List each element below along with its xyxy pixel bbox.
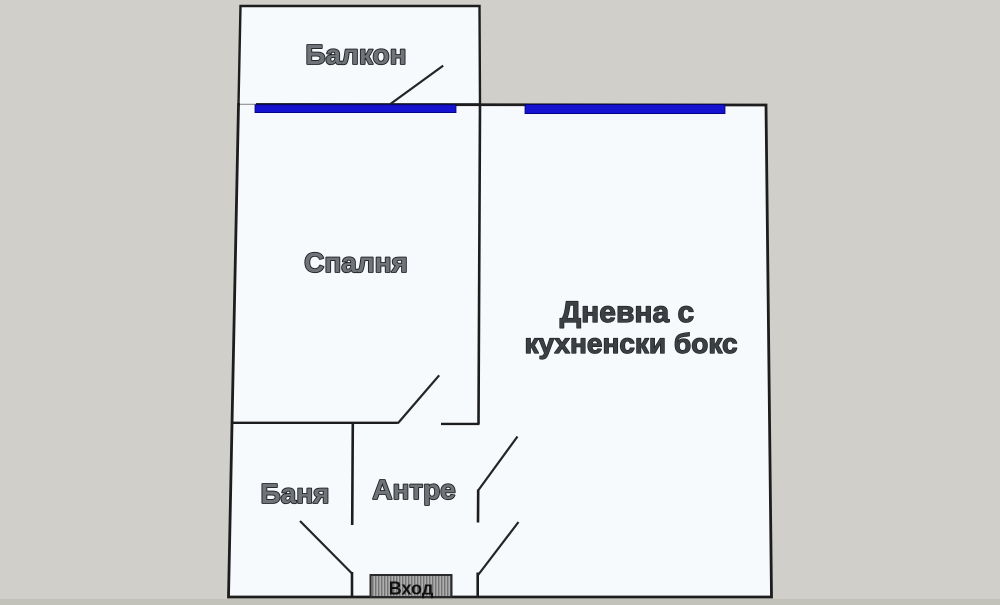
- svg-text:кухненски бокс: кухненски бокс: [524, 328, 737, 359]
- svg-text:Спалня: Спалня: [304, 247, 408, 278]
- svg-text:Вход: Вход: [389, 579, 434, 599]
- svg-text:Антре: Антре: [372, 474, 456, 505]
- svg-text:Балкон: Балкон: [305, 39, 406, 70]
- svg-text:Дневна с: Дневна с: [560, 296, 694, 329]
- svg-text:Баня: Баня: [261, 478, 330, 509]
